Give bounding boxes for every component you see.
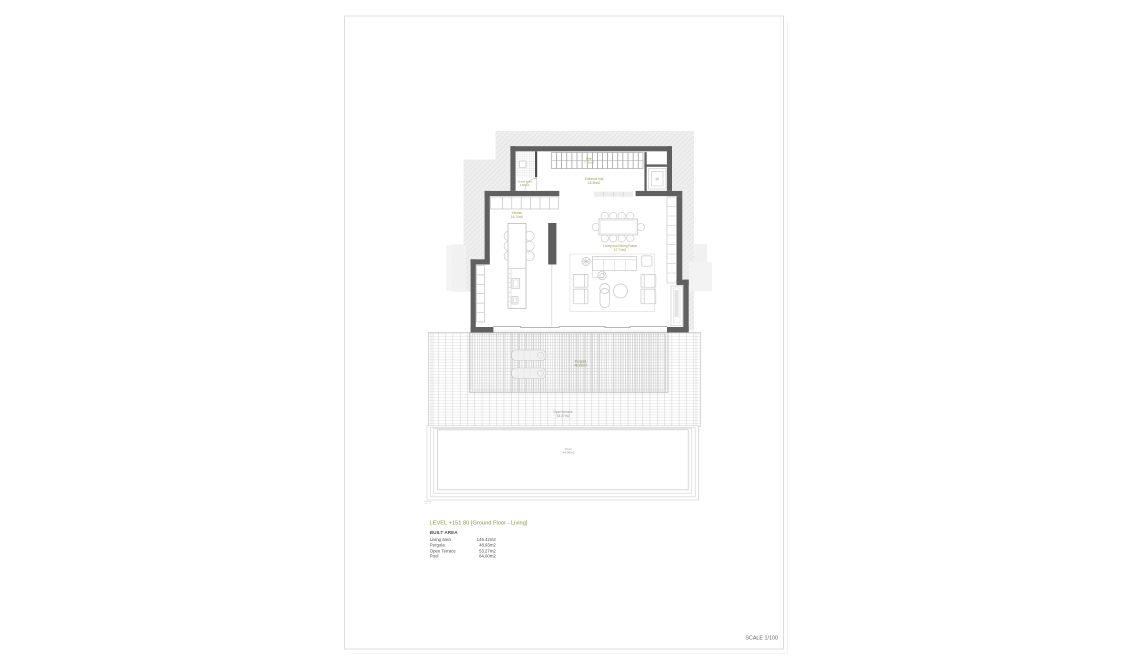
svg-text:LEVEL +151.80 [Ground Floor -: LEVEL +151.80 [Ground Floor - Living] — [430, 521, 528, 527]
svg-text:16.74m2: 16.74m2 — [511, 215, 524, 219]
svg-text:SCALE 1/100: SCALE 1/100 — [745, 636, 778, 642]
svg-text:1.80m2: 1.80m2 — [520, 183, 530, 187]
svg-text:84.00m2: 84.00m2 — [479, 553, 496, 558]
svg-text:47.74m2: 47.74m2 — [614, 248, 627, 252]
svg-text:BUILT AREA: BUILT AREA — [430, 530, 458, 535]
svg-text:48.93m2: 48.93m2 — [479, 542, 496, 547]
svg-text:48.93m2: 48.93m2 — [574, 363, 587, 367]
svg-text:Pool: Pool — [430, 553, 439, 558]
svg-text:53.27m2: 53.27m2 — [557, 414, 570, 418]
svg-text:Pergola: Pergola — [430, 542, 445, 547]
svg-text:7.15m2: 7.15m2 — [584, 160, 595, 164]
svg-text:16.36m2: 16.36m2 — [588, 181, 601, 185]
svg-text:84.00m2: 84.00m2 — [562, 451, 574, 455]
